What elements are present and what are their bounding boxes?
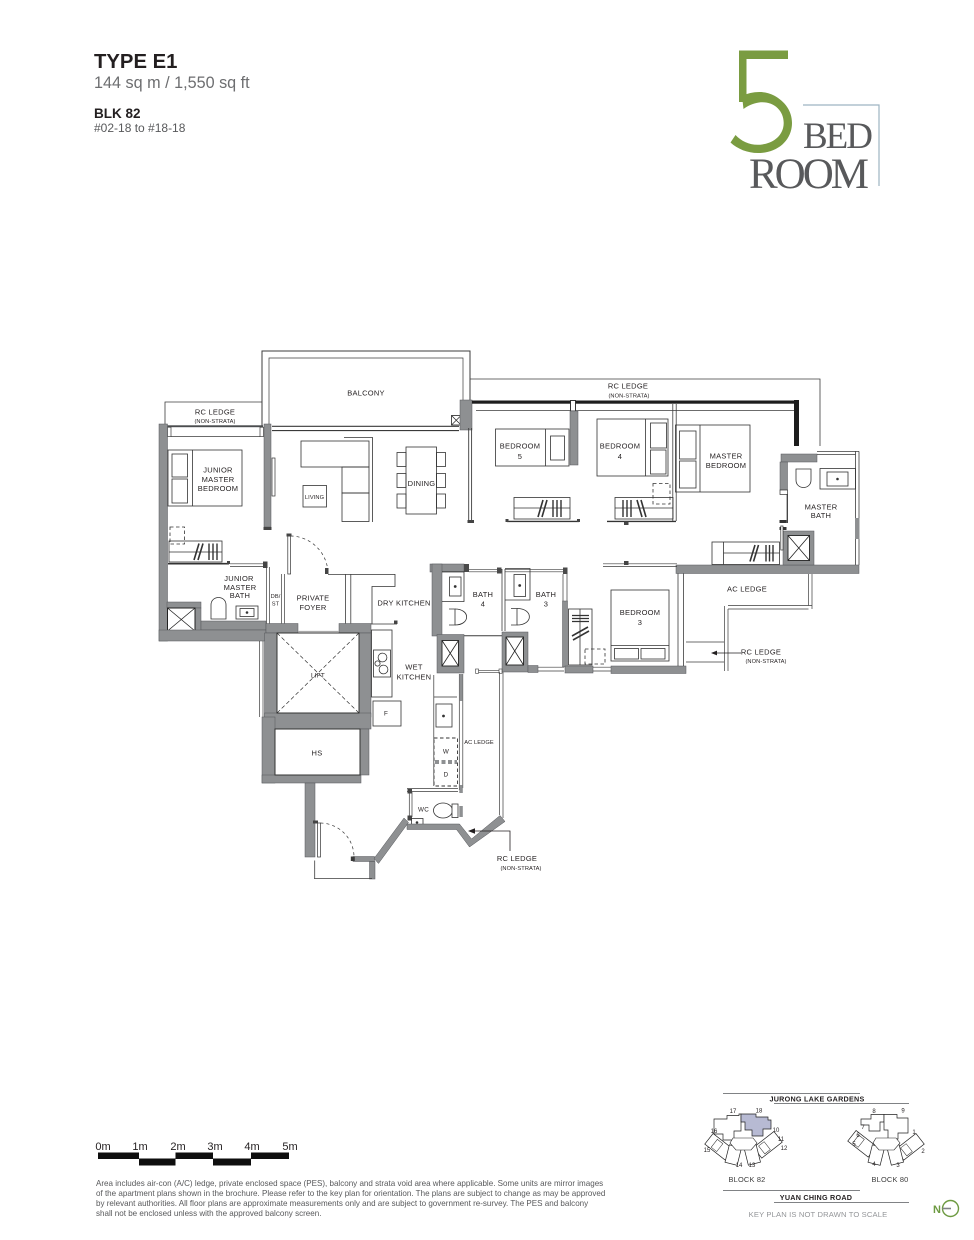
svg-text:BALCONY: BALCONY [347, 389, 385, 398]
svg-text:17: 17 [730, 1109, 737, 1115]
svg-text:RC LEDGE: RC LEDGE [195, 408, 235, 417]
svg-text:by relevant authorities. All f: by relevant authorities. All floor plans… [96, 1199, 588, 1208]
svg-text:WET: WET [405, 663, 423, 672]
svg-text:W: W [443, 749, 449, 756]
svg-text:RC LEDGE: RC LEDGE [497, 854, 537, 863]
svg-text:144 sq m / 1,550 sq ft: 144 sq m / 1,550 sq ft [94, 74, 250, 92]
svg-text:HS: HS [312, 749, 323, 758]
svg-text:MASTER: MASTER [202, 475, 235, 484]
svg-text:DB/: DB/ [271, 594, 281, 600]
svg-text:2m: 2m [170, 1141, 185, 1153]
svg-text:AC LEDGE: AC LEDGE [727, 585, 767, 594]
svg-text:BATH: BATH [473, 590, 493, 599]
svg-text:8: 8 [872, 1109, 876, 1115]
svg-text:shall not be enclosed unless w: shall not be enclosed unless with the ap… [96, 1209, 321, 1218]
svg-text:BEDROOM: BEDROOM [198, 484, 239, 493]
svg-text:9: 9 [901, 1109, 905, 1115]
svg-text:15: 15 [704, 1148, 711, 1154]
svg-text:2: 2 [921, 1149, 925, 1155]
svg-text:BEDROOM: BEDROOM [706, 461, 747, 470]
svg-text:4m: 4m [244, 1141, 259, 1153]
svg-text:Area includes air-con (A/C) le: Area includes air-con (A/C) ledge, priva… [96, 1179, 603, 1188]
svg-text:F: F [384, 711, 388, 718]
svg-text:DRY KITCHEN: DRY KITCHEN [377, 599, 430, 608]
svg-text:10: 10 [773, 1128, 780, 1134]
svg-text:WC: WC [418, 807, 429, 814]
svg-text:(NON-STRATA): (NON-STRATA) [745, 659, 786, 665]
svg-text:BLOCK 80: BLOCK 80 [872, 1175, 909, 1184]
svg-text:N: N [933, 1204, 941, 1216]
svg-text:DINING: DINING [408, 479, 436, 488]
svg-text:JURONG LAKE GARDENS: JURONG LAKE GARDENS [769, 1095, 864, 1104]
svg-text:12: 12 [781, 1146, 788, 1152]
svg-text:16: 16 [711, 1129, 718, 1135]
svg-text:FOYER: FOYER [299, 603, 326, 612]
svg-text:BLOCK 82: BLOCK 82 [729, 1175, 766, 1184]
svg-text:BATH: BATH [811, 511, 831, 520]
svg-text:#02-18 to #18-18: #02-18 to #18-18 [94, 121, 186, 135]
svg-text:KEY PLAN IS NOT DRAWN TO SCALE: KEY PLAN IS NOT DRAWN TO SCALE [749, 1210, 888, 1219]
svg-text:18: 18 [756, 1109, 763, 1115]
svg-text:4: 4 [481, 600, 485, 609]
svg-text:BLK 82: BLK 82 [94, 106, 141, 121]
svg-text:5: 5 [518, 452, 522, 461]
svg-text:3: 3 [544, 600, 548, 609]
svg-text:BEDROOM: BEDROOM [620, 608, 661, 617]
svg-text:LIVING: LIVING [305, 495, 324, 501]
svg-text:3m: 3m [207, 1141, 222, 1153]
svg-text:7: 7 [861, 1125, 865, 1131]
svg-text:AC LEDGE: AC LEDGE [464, 740, 494, 746]
svg-text:ST: ST [272, 602, 280, 608]
svg-text:3: 3 [896, 1163, 900, 1169]
svg-text:3: 3 [638, 618, 642, 627]
svg-text:BEDROOM: BEDROOM [600, 442, 641, 451]
svg-text:LIFT: LIFT [311, 673, 325, 680]
svg-text:4: 4 [618, 452, 622, 461]
svg-text:TYPE E1: TYPE E1 [94, 51, 177, 73]
svg-text:(NON-STRATA): (NON-STRATA) [194, 419, 235, 425]
svg-text:5m: 5m [282, 1141, 297, 1153]
svg-text:of the apartment plans shown i: of the apartment plans shown in the broc… [96, 1189, 605, 1198]
svg-text:11: 11 [778, 1137, 785, 1143]
svg-text:BATH: BATH [230, 591, 250, 600]
svg-text:BATH: BATH [536, 590, 556, 599]
svg-text:PRIVATE: PRIVATE [297, 594, 330, 603]
svg-text:D: D [444, 772, 449, 779]
svg-text:YUAN CHING ROAD: YUAN CHING ROAD [780, 1193, 852, 1202]
svg-text:0m: 0m [95, 1141, 110, 1153]
svg-text:13: 13 [749, 1163, 756, 1169]
svg-text:(NON-STRATA): (NON-STRATA) [608, 394, 649, 400]
svg-text:RC LEDGE: RC LEDGE [741, 648, 781, 657]
svg-text:JUNIOR: JUNIOR [224, 574, 254, 583]
svg-text:ROOM: ROOM [749, 151, 868, 198]
svg-text:JUNIOR: JUNIOR [203, 466, 233, 475]
svg-text:RC LEDGE: RC LEDGE [608, 382, 648, 391]
svg-text:1m: 1m [132, 1141, 147, 1153]
svg-text:MASTER: MASTER [710, 452, 743, 461]
svg-text:KITCHEN: KITCHEN [397, 673, 432, 682]
svg-text:(NON-STRATA): (NON-STRATA) [500, 866, 541, 872]
svg-text:14: 14 [736, 1163, 743, 1169]
svg-text:BEDROOM: BEDROOM [500, 442, 541, 451]
